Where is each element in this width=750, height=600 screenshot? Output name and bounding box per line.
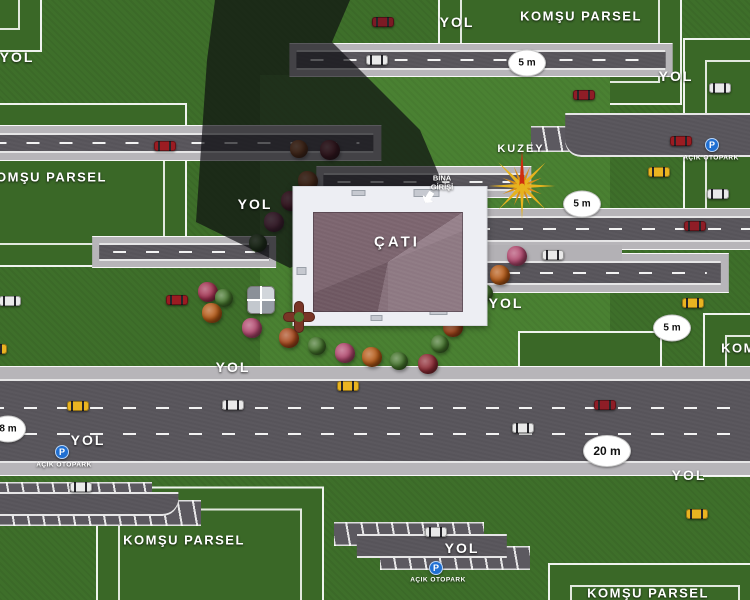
parcel-topleft-corner xyxy=(0,0,42,52)
tree-icon xyxy=(242,318,262,338)
umbrella-icon xyxy=(247,286,275,314)
car xyxy=(670,136,692,146)
rooftop-unit-icon xyxy=(371,315,383,321)
road-main-lane-dashes xyxy=(0,433,750,435)
tree-icon xyxy=(431,335,449,353)
tree-icon xyxy=(249,234,267,252)
parcel-label: KOMŞU PARSEL xyxy=(520,9,642,24)
road-label-yol: YOL xyxy=(216,359,251,375)
car xyxy=(684,221,706,231)
parking-badge-icon: P xyxy=(429,561,443,575)
road-label-yol: YOL xyxy=(489,295,524,311)
lot-left-lane-surface xyxy=(0,492,178,516)
flowerbed-center xyxy=(294,312,304,322)
car xyxy=(0,344,7,354)
road-r1-surface xyxy=(0,133,374,153)
car xyxy=(594,400,616,410)
parcel-label: KOMŞU PARSEL xyxy=(0,170,107,185)
road-label-yol: YOL xyxy=(0,49,34,65)
entrance-label: BİNAGİRİŞİ xyxy=(431,174,454,191)
car xyxy=(542,250,564,260)
car xyxy=(512,423,534,433)
site-plan-canvas: YOLYOLYOLYOLYOLYOLYOLYOLYOLKOMŞU PARSELK… xyxy=(0,0,750,600)
car xyxy=(0,296,21,306)
road-label-yol: YOL xyxy=(659,68,694,84)
car xyxy=(709,83,731,93)
car xyxy=(154,141,176,151)
parking-badge-icon: P xyxy=(55,445,69,459)
entrance-label-line2: GİRİŞİ xyxy=(431,183,454,192)
roof-label: ÇATI xyxy=(374,234,420,251)
road-main-surface xyxy=(0,379,750,463)
car xyxy=(648,167,670,177)
north-label: KUZEY xyxy=(497,143,544,155)
road-label-yol: YOL xyxy=(440,14,475,30)
car xyxy=(67,401,89,411)
parking-lot-label: AÇIK OTOPARK xyxy=(36,462,92,469)
tree-icon xyxy=(507,246,527,266)
parcel-label: KOMŞU PARSEL xyxy=(587,586,709,600)
car xyxy=(425,527,447,537)
car xyxy=(682,298,704,308)
tree-icon xyxy=(320,140,340,160)
tree-icon xyxy=(418,354,438,374)
car xyxy=(372,17,394,27)
tree-icon xyxy=(390,352,408,370)
car xyxy=(573,90,595,100)
car xyxy=(337,381,359,391)
rooftop-unit-icon xyxy=(351,190,365,196)
road-v0-lane-dashes xyxy=(113,251,255,253)
parking-lot-label: AÇIK OTOPARK xyxy=(410,577,466,584)
tree-icon xyxy=(264,212,284,232)
parking-badge-icon: P xyxy=(705,138,719,152)
car xyxy=(366,55,388,65)
parcel-label: KOMŞU PARSEL xyxy=(123,533,245,548)
road-label-yol: YOL xyxy=(672,467,707,483)
tree-icon xyxy=(290,140,308,158)
car xyxy=(222,400,244,410)
rooftop-unit-icon xyxy=(296,267,306,275)
road-v0-surface xyxy=(99,243,269,261)
lot-bottom-lane-surface xyxy=(357,534,507,558)
parking-lot-label: AÇIK OTOPARK xyxy=(683,155,739,162)
flowerbed-icon xyxy=(282,300,316,334)
road-label-yol: YOL xyxy=(238,196,273,212)
car xyxy=(707,189,729,199)
measurement-badge: 5 m xyxy=(508,50,546,77)
lot-right-lane-surface xyxy=(565,113,750,157)
car xyxy=(70,482,92,492)
tree-icon xyxy=(362,347,382,367)
north-star-icon xyxy=(484,148,560,224)
parcel-label: KOMŞU PARSEL xyxy=(721,341,750,356)
car xyxy=(686,509,708,519)
road-label-yol: YOL xyxy=(445,540,480,556)
parcel-topleft-corner-inner-line xyxy=(0,0,20,30)
road-label-yol: YOL xyxy=(71,432,106,448)
building-hip-roof xyxy=(313,212,463,312)
road-main-lane-dashes xyxy=(0,407,750,409)
car xyxy=(166,295,188,305)
measurement-badge: 5 m xyxy=(563,191,601,218)
tree-icon xyxy=(490,265,510,285)
tree-icon xyxy=(308,337,326,355)
measurement-badge: 5 m xyxy=(653,315,691,342)
measurement-badge: 20 m xyxy=(583,435,631,467)
tree-icon xyxy=(335,343,355,363)
tree-icon xyxy=(202,303,222,323)
